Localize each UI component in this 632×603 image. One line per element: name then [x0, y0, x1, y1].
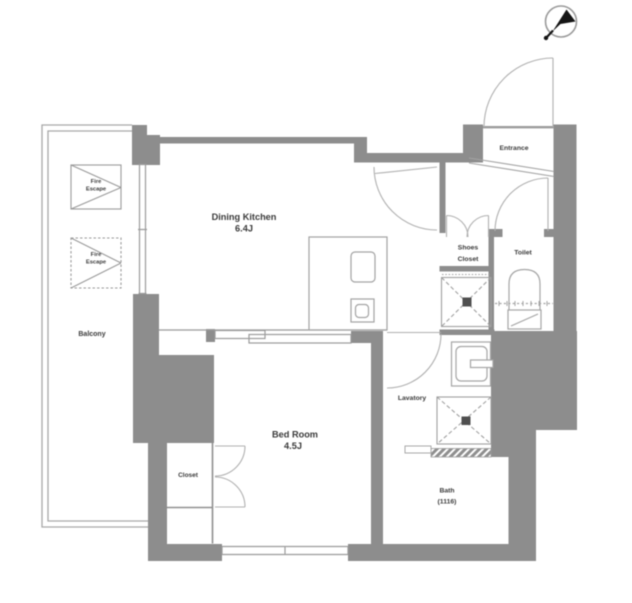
svg-text:6.4J: 6.4J [235, 224, 253, 234]
svg-text:Lavatory: Lavatory [398, 395, 427, 402]
svg-text:Fire: Fire [91, 252, 102, 258]
svg-text:Shoes: Shoes [458, 245, 479, 252]
svg-text:Closet: Closet [458, 256, 480, 263]
svg-text:Fire: Fire [91, 179, 102, 185]
svg-text:Entrance: Entrance [499, 145, 528, 152]
svg-text:Escape: Escape [86, 187, 107, 193]
svg-text:Toilet: Toilet [514, 250, 532, 257]
svg-text:(1116): (1116) [438, 499, 457, 506]
svg-text:Closet: Closet [178, 472, 199, 479]
svg-text:Balcony: Balcony [78, 331, 105, 338]
svg-text:Bed Room: Bed Room [272, 430, 318, 440]
svg-text:4.5J: 4.5J [284, 441, 302, 451]
svg-text:Dining Kitchen: Dining Kitchen [212, 212, 277, 222]
svg-text:Bath: Bath [439, 488, 454, 495]
svg-text:Escape: Escape [86, 260, 107, 266]
